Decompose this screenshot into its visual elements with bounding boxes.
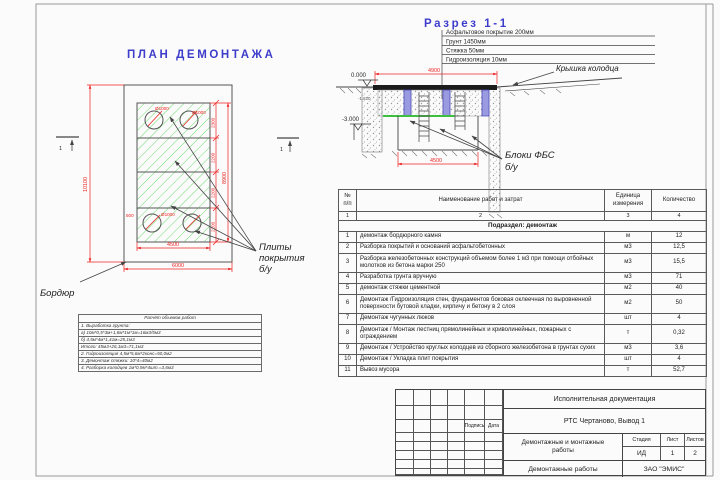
dim-inner-height: 8900 [222, 172, 228, 184]
curb-label: Бордюр [40, 288, 74, 299]
signature-grid-cell [448, 442, 465, 451]
table-row: 9Демонтаж / Устройство круглых колодцев … [339, 344, 707, 355]
layer-asphalt: Асфальтовое покрытие 200мм [446, 29, 534, 36]
signature-grid-cell [448, 420, 465, 433]
elevation-mid: -1.810 [358, 96, 371, 101]
layer-screed: Стяжка 50мм [446, 48, 484, 55]
calc-line: 1. Выработка грунта: [79, 322, 261, 329]
dim-seg1: 2300 [211, 117, 216, 128]
plan-view: ПЛАН ДЕМОНТАЖА Ø1000 Ø1000 Ø1000 [40, 49, 305, 299]
calc-line: б) 4,5м*4м*1,41м=25,1м3 [79, 336, 261, 343]
signature-grid-cell [396, 451, 414, 460]
signature-grid-cell [414, 433, 431, 442]
table-row: 8Демонтаж / Монтаж лестниц прямолинейных… [339, 325, 707, 344]
signature-grid-cell [431, 460, 448, 469]
signature-grid-cell [431, 469, 448, 475]
dim-bottom-width: 4500 [430, 158, 442, 164]
signature-grid-cell [465, 406, 485, 420]
signature-grid-cell [414, 406, 431, 420]
works-header-unit: Единица измерения [605, 190, 652, 212]
works-subsection-row: Подраздел: демонтаж [339, 221, 707, 232]
signature-grid-cell [448, 451, 465, 460]
pit-structure [378, 90, 489, 116]
signature-grid-cell [396, 433, 414, 442]
signature-grid-cell [485, 451, 503, 460]
signature-grid-cell [448, 390, 465, 406]
signature-grid-cell [465, 460, 485, 469]
table-row: 5демонтаж стяжки цементнойм240 [339, 284, 707, 295]
cover-label: Крышка колодца [556, 64, 619, 73]
signature-grid-cell [431, 390, 448, 406]
stage-header-row: Стадия Лист Листов [623, 434, 705, 447]
works-colnum-row: 1 2 3 4 [339, 212, 707, 221]
sheets-label: Листов [685, 434, 705, 446]
slabs-label-3: б/у [259, 264, 273, 275]
svg-text:1: 1 [59, 146, 62, 152]
calc-table: Расчёт объемов работ 1. Выработка грунта… [78, 314, 262, 372]
signature-grid-cell [485, 469, 503, 475]
signature-grid-cell [465, 451, 485, 460]
signature-grid-cell [485, 442, 503, 451]
signature-grid-cell [485, 390, 503, 406]
signature-grid-cell [465, 433, 485, 442]
dim-hole-bottom: Ø1000 [161, 212, 175, 217]
title-block-signature-grid: ПодписьДата [396, 390, 504, 475]
signature-grid-cell [431, 420, 448, 433]
dim-total-height: 10100 [83, 177, 89, 192]
signature-grid-cell [414, 469, 431, 475]
table-row: 7Демонтаж чугунных люковшт4 [339, 314, 707, 325]
signature-grid-cell [396, 390, 414, 406]
company-name: ЗАО "ЭМИС" [623, 461, 705, 477]
work-name: Демонтажные и монтажные работы [504, 434, 623, 460]
signature-grid-cell [465, 469, 485, 475]
stage-value: ИД [623, 447, 661, 460]
dim-hole-top2: Ø1000 [192, 110, 206, 115]
signature-grid-cell [431, 406, 448, 420]
calc-line: 2. Гидроизоляция 4,5м*5,6м*2конс=50,0м2 [79, 350, 261, 357]
calc-line: 4. Разборка колодцев 1м*0,9м*4шт.=3,6м3 [79, 364, 261, 371]
signature-grid-cell: Подпись [465, 420, 485, 433]
signature-grid-cell [414, 420, 431, 433]
blocks-label-2: б/у [505, 162, 519, 173]
signature-grid-cell [396, 406, 414, 420]
dim-seg2: 2200 [211, 152, 216, 163]
well-bottom-ticks [392, 151, 487, 156]
dim-inner-width: 4500 [167, 242, 179, 248]
signature-grid-cell [485, 406, 503, 420]
svg-text:1: 1 [280, 147, 283, 153]
table-row: 6Демонтаж /Гидроизоляция стен, фундамент… [339, 295, 707, 314]
sheet-name: Демонтажные работы [504, 461, 623, 477]
signature-grid-cell [431, 451, 448, 460]
slabs-label-1: Плиты [259, 242, 291, 253]
layer-soil: Грунт 1450мм [446, 39, 486, 46]
section-mark-right: 1 [277, 138, 299, 153]
dim-hole-top1: Ø1000 [155, 106, 169, 111]
section-mark-left: 1 [56, 137, 79, 152]
stage-value-row: ИД 1 2 [623, 447, 705, 460]
title-block-main: Исполнительная документация РТС Чертанов… [504, 390, 705, 475]
object-name: РТС Чертаново, Вывод 1 [504, 409, 705, 434]
signature-grid-cell [485, 460, 503, 469]
dim-left-lines [87, 85, 124, 262]
drawing-sheet: ПЛАН ДЕМОНТАЖА Ø1000 Ø1000 Ø1000 [0, 0, 720, 480]
signature-grid-cell [414, 390, 431, 406]
signature-grid-cell [396, 469, 414, 475]
signature-grid-cell [414, 442, 431, 451]
works-header-name: Наименование работ и затрат [357, 190, 605, 212]
sheet-label: Лист [661, 434, 685, 446]
works-header-num: № п/п [339, 190, 357, 212]
works-table: № п/п Наименование работ и затрат Единиц… [338, 189, 707, 377]
dim-offset: 500 [126, 213, 134, 218]
table-row: 11Вывоз мусорат52,7 [339, 366, 707, 377]
dim-seg3: 2200 [211, 187, 216, 198]
works-header-qty: Количество [652, 190, 707, 212]
signature-grid-cell [396, 420, 414, 433]
calc-title: Расчёт объемов работ [79, 315, 261, 322]
dim-total-width: 6000 [172, 263, 184, 269]
signature-grid-cell [448, 433, 465, 442]
calc-line: а) 10м*0,5*3м+1,8м*1м*1м=16м3/5м3 [79, 329, 261, 336]
signature-grid-cell [448, 406, 465, 420]
signature-grid-cell [485, 433, 503, 442]
title-block: ПодписьДата Исполнительная документация … [395, 389, 706, 476]
signature-grid-cell [431, 442, 448, 451]
signature-grid-cell [465, 390, 485, 406]
curb-leader [80, 262, 126, 282]
table-row: 10Демонтаж / Укладка плит покрытияшт4 [339, 355, 707, 366]
doc-type: Исполнительная документация [504, 390, 705, 409]
table-row: 2Разборка покрытий и оснований асфальтоб… [339, 243, 707, 254]
stage-label: Стадия [623, 434, 661, 446]
blocks-label-1: Блоки ФБС [505, 150, 555, 161]
signature-grid-cell [465, 442, 485, 451]
elevation-zero: 0.000 [351, 73, 378, 86]
dim-top-width: 4900 [428, 68, 440, 74]
asphalt-band [373, 85, 497, 90]
signature-grid-cell [414, 451, 431, 460]
table-row: 1демонтаж бордюрного камням12 [339, 232, 707, 243]
signature-grid-cell [448, 460, 465, 469]
calc-line: 3. Демонтаж стяжки: 10*4=40м2 [79, 357, 261, 364]
calc-line: Итого: 45м3+26,1м3=71,1м3 [79, 343, 261, 350]
works-header-row: № п/п Наименование работ и затрат Единиц… [339, 190, 707, 212]
table-row: 3Разборка железобетонных конструкций объ… [339, 254, 707, 273]
signature-grid-cell [396, 460, 414, 469]
layer-waterproofing: Гидроизоляция 10мм [446, 57, 507, 64]
svg-text:-3.000: -3.000 [342, 117, 360, 123]
subsection-title: Подраздел: демонтаж [339, 221, 707, 232]
table-row: 4Разработка грунта вручнуюм371 [339, 273, 707, 284]
signature-grid-cell [448, 469, 465, 475]
signature-grid-cell [414, 460, 431, 469]
signature-grid-cell: Дата [485, 420, 503, 433]
svg-text:0.000: 0.000 [351, 73, 367, 79]
sheets-value: 2 [685, 447, 705, 460]
slabs-label-2: покрытия [259, 253, 305, 264]
plan-title: ПЛАН ДЕМОНТАЖА [127, 49, 276, 61]
dim-seg4: 2200 [211, 221, 216, 232]
blocks-leaders [410, 121, 502, 159]
section-view: Разрез 1-1 Асфальтовое покрытие 200мм Гр… [336, 18, 655, 218]
signature-grid-cell [396, 442, 414, 451]
sheet-value: 1 [661, 447, 685, 460]
signature-grid-cell [431, 433, 448, 442]
